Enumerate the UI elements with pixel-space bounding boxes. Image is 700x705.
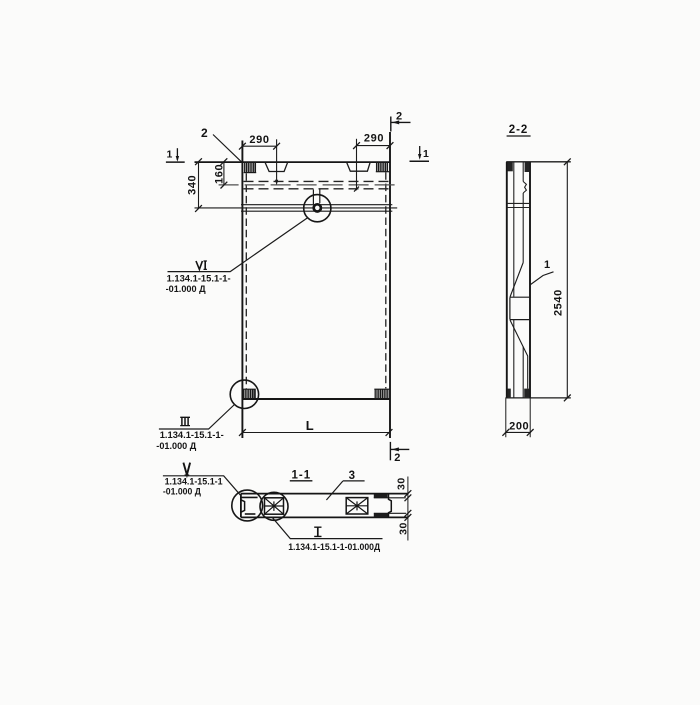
svg-text:1.134.1-15.1-1-01.000Д: 1.134.1-15.1-1-01.000Д: [288, 542, 380, 553]
svg-text:200: 200: [509, 420, 529, 432]
svg-text:-01.000 Д: -01.000 Д: [166, 284, 206, 295]
svg-text:-01.000 Д: -01.000 Д: [163, 486, 201, 497]
svg-text:2: 2: [394, 452, 400, 464]
svg-text:2540: 2540: [553, 289, 565, 316]
svg-text:30: 30: [398, 522, 410, 535]
svg-text:2-2: 2-2: [509, 124, 529, 136]
svg-text:290: 290: [249, 134, 269, 146]
svg-text:1.134.1-15.1-1-: 1.134.1-15.1-1-: [160, 430, 224, 441]
svg-text:1: 1: [423, 148, 429, 160]
svg-text:290: 290: [364, 133, 384, 145]
svg-text:2: 2: [201, 126, 208, 140]
svg-text:-01.000 Д: -01.000 Д: [156, 441, 196, 452]
svg-text:L: L: [306, 418, 314, 433]
svg-text:1-1: 1-1: [291, 470, 311, 482]
svg-text:2: 2: [396, 111, 402, 123]
svg-text:160: 160: [213, 164, 225, 184]
svg-text:30: 30: [395, 477, 407, 490]
svg-text:1: 1: [544, 259, 550, 271]
svg-text:340: 340: [187, 175, 199, 195]
svg-text:1: 1: [167, 149, 173, 161]
svg-text:1.134.1-15.1-1-: 1.134.1-15.1-1-: [167, 273, 231, 284]
svg-text:3: 3: [349, 470, 355, 482]
